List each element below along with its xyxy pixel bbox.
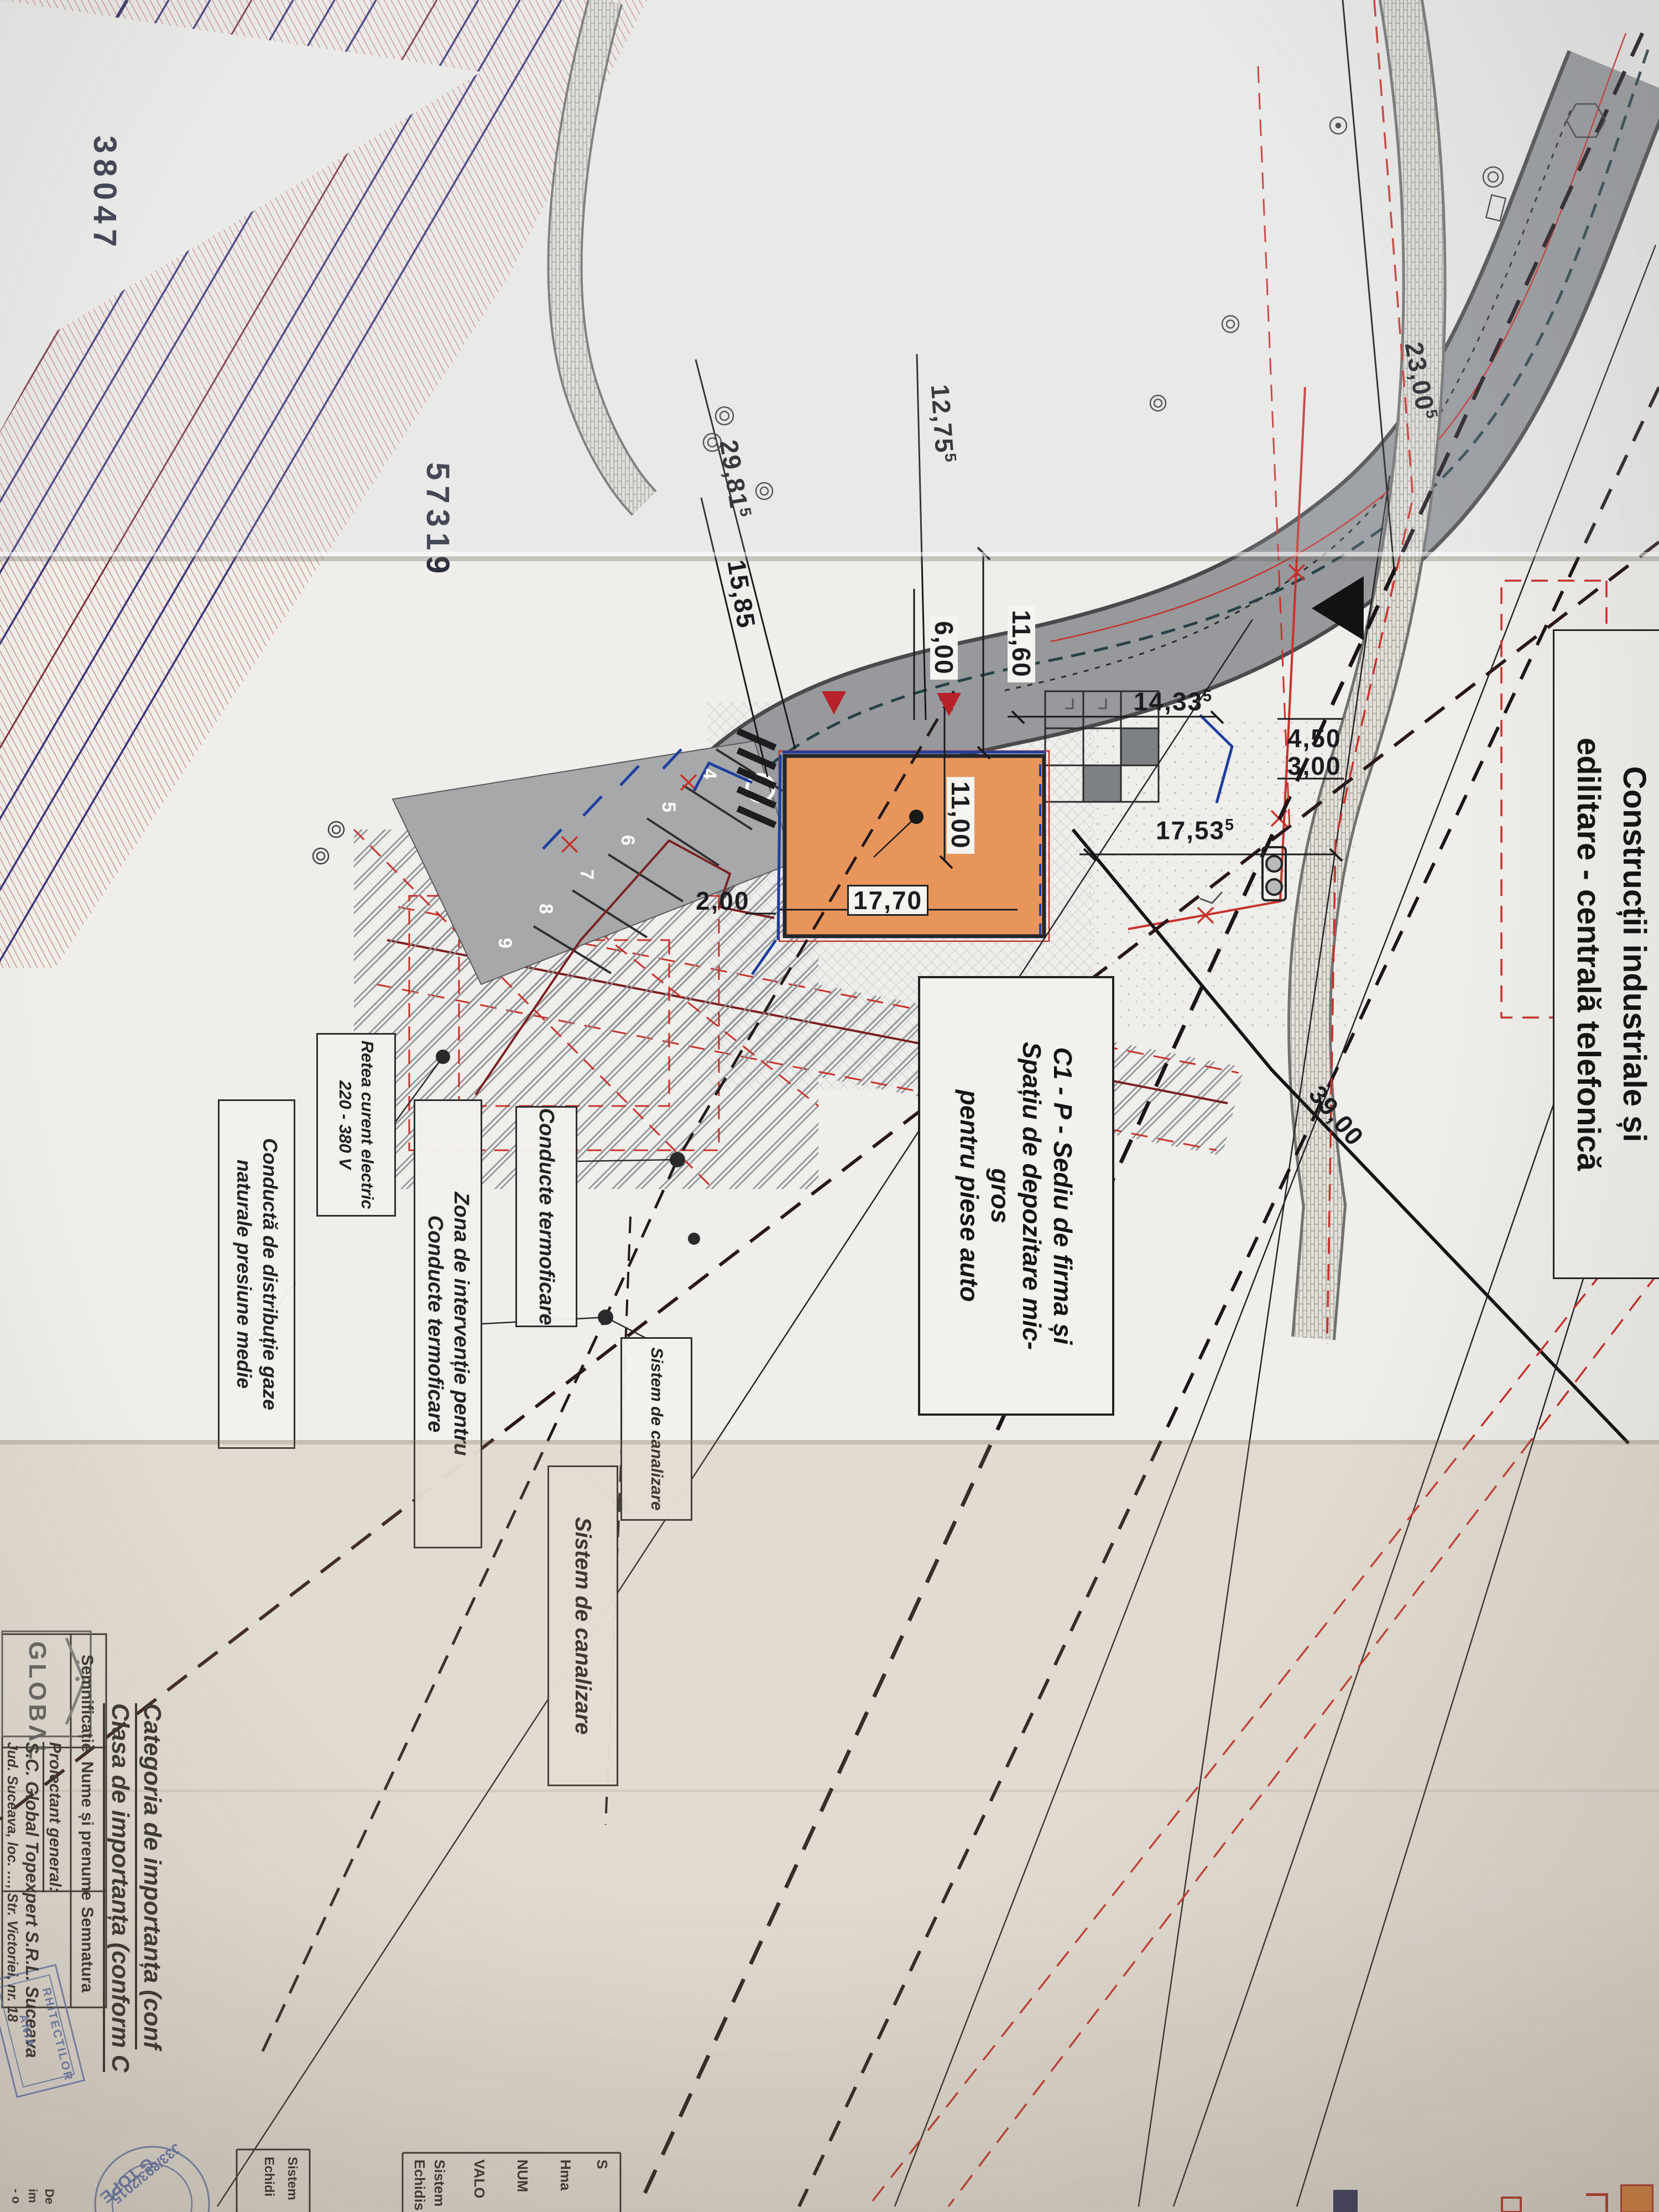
corner-fragment-2: im [25,2189,40,2203]
stall-number-6: 6 [618,835,637,846]
table-header-semnatura: Semnatura [77,1907,96,1992]
dim-4-50: 4,50 [1287,726,1342,751]
dim-17-53: 17,535 [1156,817,1235,843]
clasa-line: Clasa de importanța (conform C [103,1703,134,2072]
telefonica-line1: Construcții industriale și [1616,766,1653,1142]
callout-gaze: Conductă de distribuție gaze naturale pr… [218,1099,295,1449]
dim-2-00-a: 2,00 [696,888,750,914]
building-label-line2: Spațiu de depozitare mic- [1016,1042,1047,1350]
building-label-line3: gros [985,1168,1016,1224]
legend-icon-red-bracket [1586,2193,1608,2212]
building-label-line4: pentru piese auto [954,1090,985,1302]
stall-number-4: 4 [700,769,719,779]
building-label-box: C1 - P - Sediu de firma și Spațiu de dep… [918,976,1114,1416]
plan-sheet: 38047 57319 23,005 12,755 29,815 15,85 1… [0,0,1659,2212]
callout-canalizare-2: Sistem de canalizare [547,1465,618,1786]
note-fragment-valo: VALO [471,2159,488,2198]
dim-11-60: 11,60 [1008,606,1035,682]
note-b-fragment-sistem: Sistem [284,2157,300,2200]
stall-number-7: 7 [577,869,596,880]
note-fragment-echidis: Echidis [411,2159,428,2210]
stall-number-5: 5 [659,802,678,812]
corner-fragment-3: - o [9,2189,23,2204]
legend-icon-navy [1333,2190,1358,2212]
dim-3-00: 3,00 [1287,753,1342,779]
proiectant-label: Proiectant general: [43,1742,64,1892]
categoria-line: Categoria de importanța (conf [135,1703,166,2049]
dim-11-00: 11,00 [947,777,974,854]
coord-label-x: 38047 [88,135,121,252]
proiectant-name: S.C. Global Topexpert S.R.L. Suceava [22,1742,42,2058]
callout-canalizare-1: Sistem de canalizare [620,1337,692,1521]
site-plan-photo: 38047 57319 23,005 12,755 29,815 15,85 1… [0,0,1659,2212]
note-fragment-s: S [593,2159,611,2169]
dim-14-33: 14,335 [1134,688,1213,714]
dim-12-75: 12,755 [927,384,958,465]
telefonica-label-box: Construcții industriale și edilitare - c… [1553,629,1659,1279]
note-fragment-num: NUM [514,2159,531,2192]
note-b-fragment-echidi: Echidi [261,2157,276,2197]
note-fragment-hma: Hma [557,2159,574,2190]
stall-number-9: 9 [495,938,514,948]
table-header-nume: Nume și prenume [77,1761,96,1901]
callout-zona-interventie: Zona de intervenție pentru Conducte term… [414,1099,482,1548]
dim-17-70: 17,70 [847,885,928,916]
stall-number-8: 8 [536,904,555,914]
telefonica-line2: edilitare - centrală telefonică [1570,738,1607,1171]
table-header-semnificatie: Semnificație [77,1655,96,1752]
callout-termoficare: Conducte termoficare [515,1106,577,1327]
dim-6-00: 6,00 [930,617,958,680]
proiectant-address: Jud. Suceava, loc. …, Str. Victoriei, nr… [4,1742,21,2022]
legend-icon-orange [1620,2184,1653,2212]
legend-icon-red-outline [1501,2197,1522,2212]
coord-label-y: 57319 [421,459,453,582]
building-label-line1: C1 - P - Sediu de firma și [1047,1047,1078,1345]
corner-fragment-1: De [42,2189,56,2204]
callout-retea-electric: Retea curent electric 220 - 380 V [316,1033,396,1217]
note-fragment-sistem: Sistem [431,2159,448,2206]
